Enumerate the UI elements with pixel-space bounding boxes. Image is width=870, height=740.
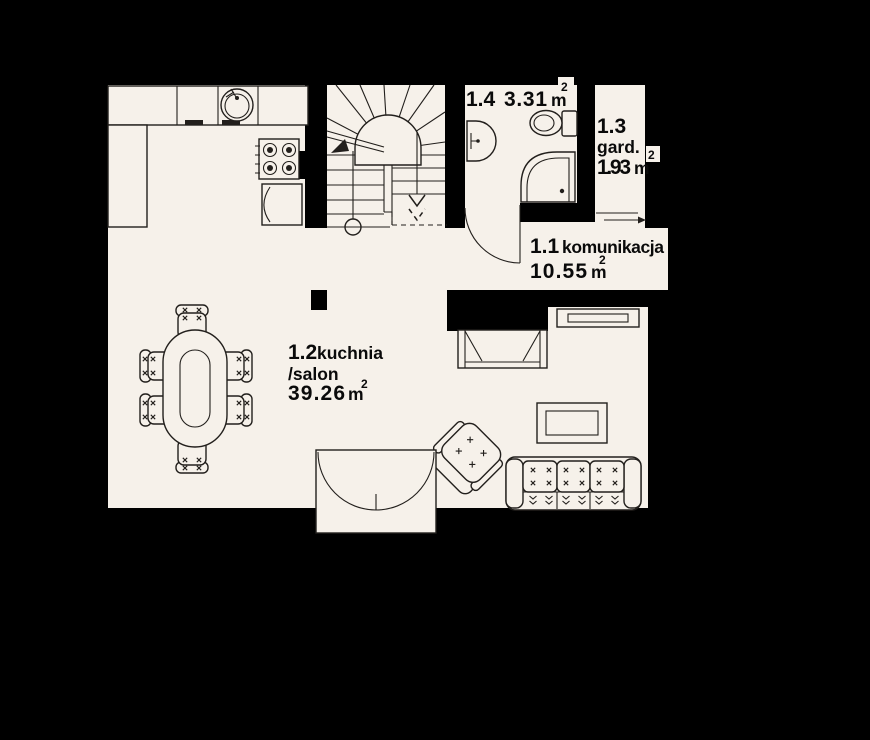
fireplace bbox=[458, 330, 547, 368]
room-sup: 2 bbox=[648, 148, 655, 162]
room-area: 39.26 bbox=[288, 382, 345, 405]
room-name: kuchnia bbox=[317, 343, 383, 363]
room-area: 1.93 bbox=[597, 156, 631, 179]
room-sup: 2 bbox=[361, 377, 368, 391]
sideboard bbox=[557, 309, 639, 327]
room-number: 1.3 bbox=[597, 115, 626, 138]
room-unit: m bbox=[591, 262, 607, 282]
cabinet-handle bbox=[185, 120, 203, 125]
kitchen-counter bbox=[108, 86, 308, 125]
room-number: 1.4 bbox=[466, 88, 496, 111]
coffee-table bbox=[537, 403, 607, 443]
room-name: komunikacja bbox=[562, 237, 664, 257]
column bbox=[311, 290, 327, 310]
terrace-double-door bbox=[316, 450, 436, 533]
room-area: 3.31 bbox=[504, 88, 547, 111]
floor-passage bbox=[448, 228, 465, 290]
room-area: 10.55 bbox=[530, 260, 587, 283]
toilet bbox=[530, 111, 577, 137]
room-name2: /salon bbox=[288, 364, 339, 384]
cooktop bbox=[255, 139, 299, 179]
room-name: gard. bbox=[597, 137, 640, 157]
chimney-mass bbox=[447, 290, 548, 331]
floor-plan-canvas: 1.4 3.31 m 2 1.3 gard. 1.93 m 2 1.1 komu… bbox=[0, 0, 870, 740]
wall-bathroom-bottom bbox=[520, 203, 577, 222]
fridge bbox=[262, 184, 302, 225]
kitchen-counter-left bbox=[108, 125, 147, 227]
wall-hallway-salon bbox=[548, 290, 645, 307]
dining-table bbox=[163, 330, 227, 447]
room-number: 1.2 bbox=[288, 341, 317, 364]
wall-stairs-bathroom bbox=[445, 85, 465, 228]
room-sup: 2 bbox=[561, 80, 568, 94]
wall-wardrobe-corner bbox=[645, 205, 668, 228]
room-number: 1.1 bbox=[530, 235, 560, 258]
wall-bathroom-wardrobe bbox=[577, 85, 595, 222]
sofa bbox=[506, 457, 641, 510]
kitchen-sink bbox=[221, 89, 253, 121]
